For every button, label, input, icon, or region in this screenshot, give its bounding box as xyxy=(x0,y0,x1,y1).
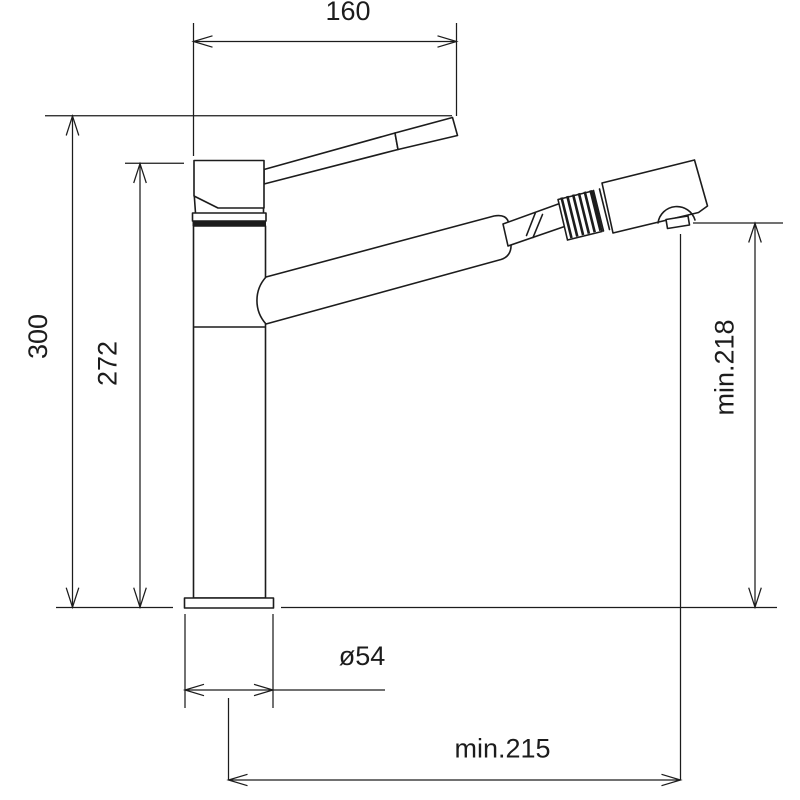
faucet-dimension-drawing: 160 300 272 min.218 xyxy=(0,0,800,800)
dim-label-dia54: ø54 xyxy=(339,641,386,671)
lever-handle xyxy=(264,118,458,185)
dimensions: 160 300 272 min.218 xyxy=(23,0,783,786)
dim-label-300: 300 xyxy=(23,314,53,359)
collar-dark-band xyxy=(193,221,267,226)
dim-dia54: ø54 xyxy=(185,614,385,708)
dim-min218: min.218 xyxy=(681,223,784,780)
spray-head xyxy=(602,160,708,233)
pull-out-hose xyxy=(503,203,566,246)
dim-min215: min.215 xyxy=(229,698,681,786)
faucet-column xyxy=(194,226,266,598)
mixer-head xyxy=(194,161,264,214)
dim-label-min215: min.215 xyxy=(454,734,550,764)
neck-left-edge xyxy=(194,196,195,213)
lever-handle-tip xyxy=(395,118,458,150)
dim-label-272: 272 xyxy=(93,341,123,386)
base-flange xyxy=(185,598,274,608)
dim-272: 272 xyxy=(93,163,185,607)
faucet-figure xyxy=(56,118,777,609)
spout xyxy=(257,216,511,324)
collar xyxy=(193,213,267,226)
dim-label-160: 160 xyxy=(325,0,370,26)
technical-drawing-canvas: 160 300 272 min.218 xyxy=(0,0,800,800)
dim-label-min218: min.218 xyxy=(710,319,740,415)
